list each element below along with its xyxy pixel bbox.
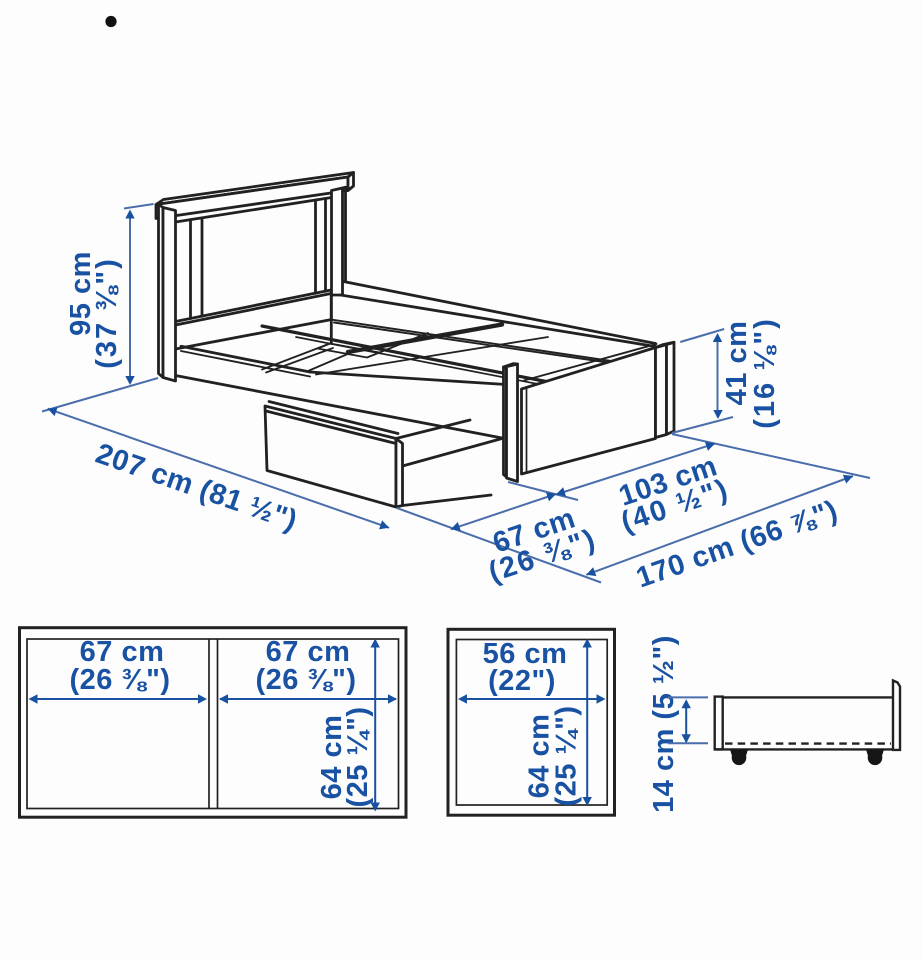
svg-text:(22"): (22") (488, 665, 556, 697)
svg-text:(16 ⅛"): (16 ⅛") (749, 317, 781, 429)
svg-text:(26 ⅜"): (26 ⅜") (69, 664, 170, 696)
svg-text:(25 ¼"): (25 ¼") (551, 705, 583, 806)
svg-text:(37 ⅜"): (37 ⅜") (91, 257, 123, 369)
svg-text:(25 ¼"): (25 ¼") (342, 706, 374, 807)
svg-text:(26 ⅜"): (26 ⅜") (255, 664, 356, 696)
svg-text:14 cm (5 ½"): 14 cm (5 ½") (648, 635, 680, 813)
